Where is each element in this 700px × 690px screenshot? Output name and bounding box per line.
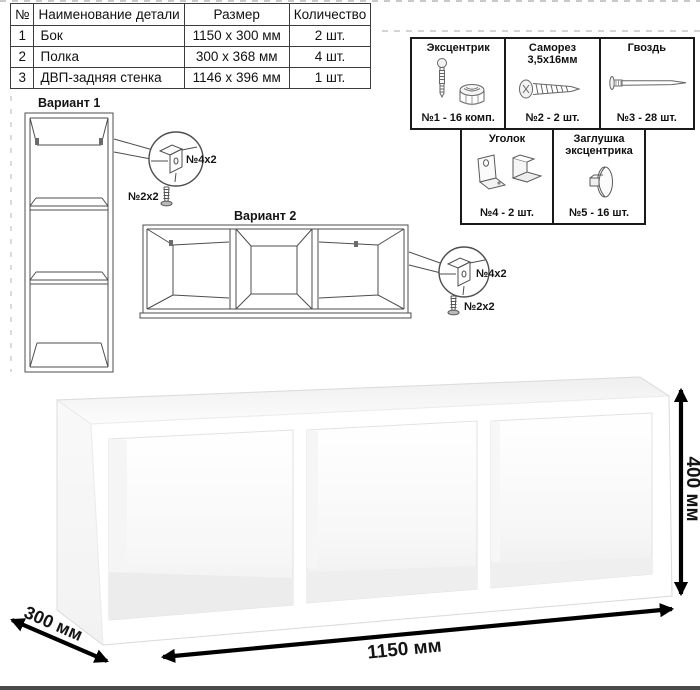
cam-cap-icon bbox=[564, 157, 634, 207]
part-number: 1 bbox=[11, 26, 34, 47]
hardware-title: Уголок bbox=[489, 133, 525, 145]
variant1-drawing bbox=[25, 113, 153, 372]
hardware-count: №1 - 16 комп. bbox=[422, 112, 495, 124]
hardware-title: Саморез bbox=[528, 42, 578, 54]
height-dimension-label: 400 мм bbox=[682, 456, 700, 521]
nail-icon bbox=[604, 54, 690, 112]
hardware-box-row1: Эксцентрик №1 - 16 комп. Саморез bbox=[410, 37, 695, 130]
part-qty: 2 шт. bbox=[289, 26, 371, 47]
part-name: Бок bbox=[34, 26, 184, 47]
col-part-name: Наименование детали bbox=[34, 4, 184, 26]
hardware-item-corner-bracket: Уголок №4 - 2 шт. bbox=[462, 130, 552, 223]
parts-table-header-row: № Наименование детали Размер Количество bbox=[11, 4, 371, 26]
hardware-subtitle: эксцентрика bbox=[565, 145, 633, 157]
bracket-mark-icon bbox=[169, 240, 173, 246]
col-number: № bbox=[11, 4, 34, 26]
variant2-callout: №4х2 №2х2 bbox=[439, 247, 507, 315]
hardware-count: №2 - 2 шт. bbox=[526, 112, 580, 124]
hardware-count: №3 - 28 шт. bbox=[617, 112, 677, 124]
cam-bolt-and-lock-icon bbox=[420, 54, 496, 112]
hardware-item-cam-cap: Заглушка эксцентрика №5 - 16 шт. bbox=[552, 130, 644, 223]
parts-table: № Наименование детали Размер Количество … bbox=[10, 3, 371, 89]
table-row: 3 ДВП-задняя стенка 1146 х 396 мм 1 шт. bbox=[11, 68, 371, 89]
variant1-title: Вариант 1 bbox=[38, 96, 100, 110]
variant1-callout: №4х2 №2х2 bbox=[128, 132, 217, 206]
hardware-box-row2: Уголок №4 - 2 шт. Заглушка эксцентрика bbox=[460, 128, 646, 225]
screw-note: №2х2 bbox=[128, 191, 159, 203]
photo-bottom-edge bbox=[0, 686, 700, 690]
bracket-mark-icon bbox=[35, 138, 39, 145]
hardware-item-screw: Саморез 3,5х16мм №2 - 2 шт. bbox=[504, 39, 598, 128]
table-row: 2 Полка 300 х 368 мм 4 шт. bbox=[11, 47, 371, 68]
hardware-title: Эксцентрик bbox=[427, 42, 490, 54]
part-qty: 1 шт. bbox=[289, 68, 371, 89]
bracket-mark-icon bbox=[99, 138, 103, 145]
part-size: 300 х 368 мм bbox=[184, 47, 289, 68]
bracket-note: №4х2 bbox=[186, 154, 217, 166]
part-number: 3 bbox=[11, 68, 34, 89]
corner-bracket-icon bbox=[468, 145, 546, 207]
screw-note: №2х2 bbox=[464, 301, 495, 313]
screw-icon bbox=[513, 66, 591, 112]
assembly-instruction-sheet: №4х2 №2х2 Вариант 1 №4х2 №2х2 Вариант 2 bbox=[0, 0, 700, 690]
hardware-title: Гвоздь bbox=[628, 42, 666, 54]
variant2-title: Вариант 2 bbox=[234, 209, 296, 223]
table-row: 1 Бок 1150 х 300 мм 2 шт. bbox=[11, 26, 371, 47]
part-qty: 4 шт. bbox=[289, 47, 371, 68]
part-size: 1146 х 396 мм bbox=[184, 68, 289, 89]
hardware-item-cam-lock: Эксцентрик №1 - 16 комп. bbox=[412, 39, 504, 128]
variant2-drawing bbox=[140, 225, 443, 318]
part-name: ДВП-задняя стенка bbox=[34, 68, 184, 89]
shelf-3d-render bbox=[57, 377, 672, 645]
col-quantity: Количество bbox=[289, 4, 371, 26]
part-name: Полка bbox=[34, 47, 184, 68]
col-size: Размер bbox=[184, 4, 289, 26]
hardware-subtitle: 3,5х16мм bbox=[528, 54, 578, 66]
bracket-note: №4х2 bbox=[476, 268, 507, 280]
bracket-mark-icon bbox=[354, 241, 358, 247]
screw-detail-icon bbox=[448, 296, 459, 315]
part-size: 1150 х 300 мм bbox=[184, 26, 289, 47]
hardware-title: Заглушка bbox=[565, 133, 633, 145]
hardware-count: №4 - 2 шт. bbox=[480, 207, 534, 219]
part-number: 2 bbox=[11, 47, 34, 68]
hardware-item-nail: Гвоздь №3 - 28 шт. bbox=[599, 39, 693, 128]
screw-detail-icon bbox=[161, 187, 172, 206]
hardware-count: №5 - 16 шт. bbox=[569, 207, 629, 219]
width-dimension-label: 1150 мм bbox=[366, 635, 442, 663]
